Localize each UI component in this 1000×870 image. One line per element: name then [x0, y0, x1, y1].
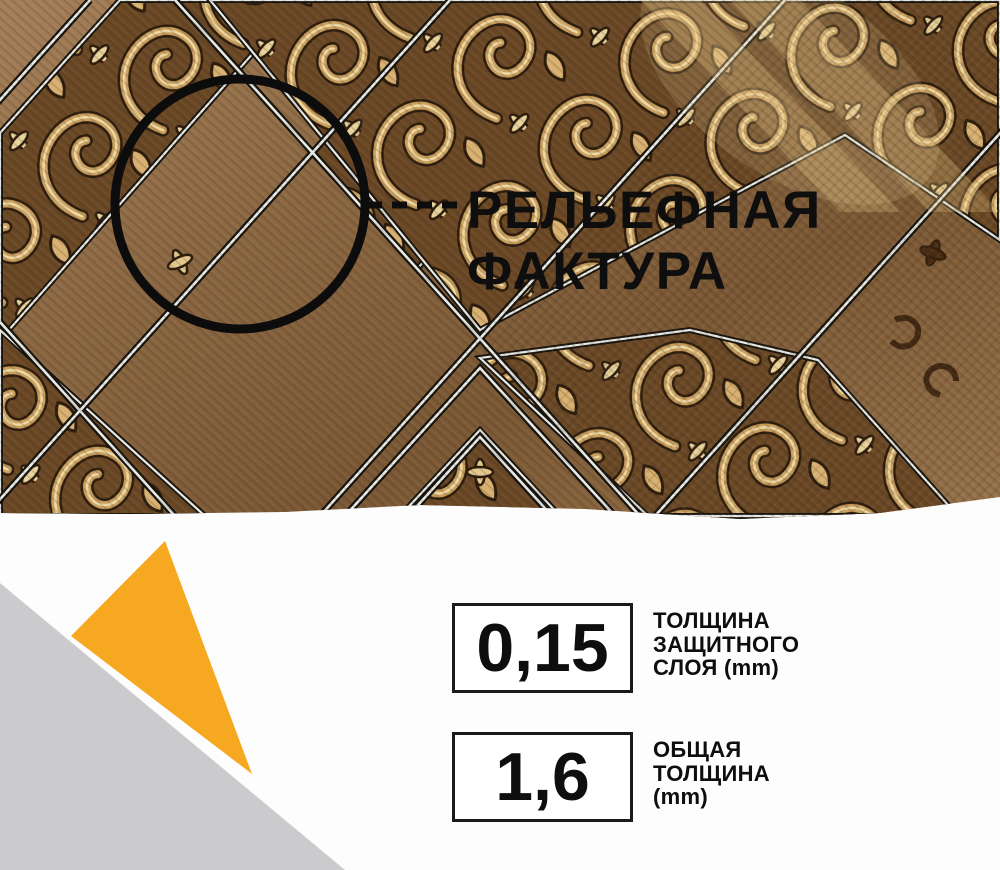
callout-line1: РЕЛЬЕФНАЯ — [467, 181, 822, 240]
spec-label-protective-layer: ТОЛЩИНА ЗАЩИТНОГО СЛОЯ (mm) — [653, 609, 883, 680]
spec-label-line: ТОЛЩИНА — [653, 762, 883, 786]
spec-label-line: ЗАЩИТНОГО — [653, 633, 883, 657]
spec-box-protective-layer: 0,15 — [452, 603, 633, 693]
product-infographic: РЕЛЬЕФНАЯ ФАКТУРА 0,15 ТОЛЩИНА ЗАЩИТНОГО… — [0, 0, 1000, 870]
spec-value-protective-layer: 0,15 — [476, 608, 608, 688]
callout-line2: ФАКТУРА — [467, 242, 728, 301]
spec-label-total-thickness: ОБЩАЯ ТОЛЩИНА (mm) — [653, 738, 883, 809]
spec-label-line: ОБЩАЯ — [653, 738, 883, 762]
spec-label-line: (mm) — [653, 785, 883, 809]
spec-label-line: ТОЛЩИНА — [653, 609, 883, 633]
spec-value-total-thickness: 1,6 — [495, 737, 590, 817]
spec-box-total-thickness: 1,6 — [452, 732, 633, 822]
callout-label: РЕЛЬЕФНАЯ ФАКТУРА — [467, 180, 887, 302]
spec-label-line: СЛОЯ (mm) — [653, 656, 883, 680]
